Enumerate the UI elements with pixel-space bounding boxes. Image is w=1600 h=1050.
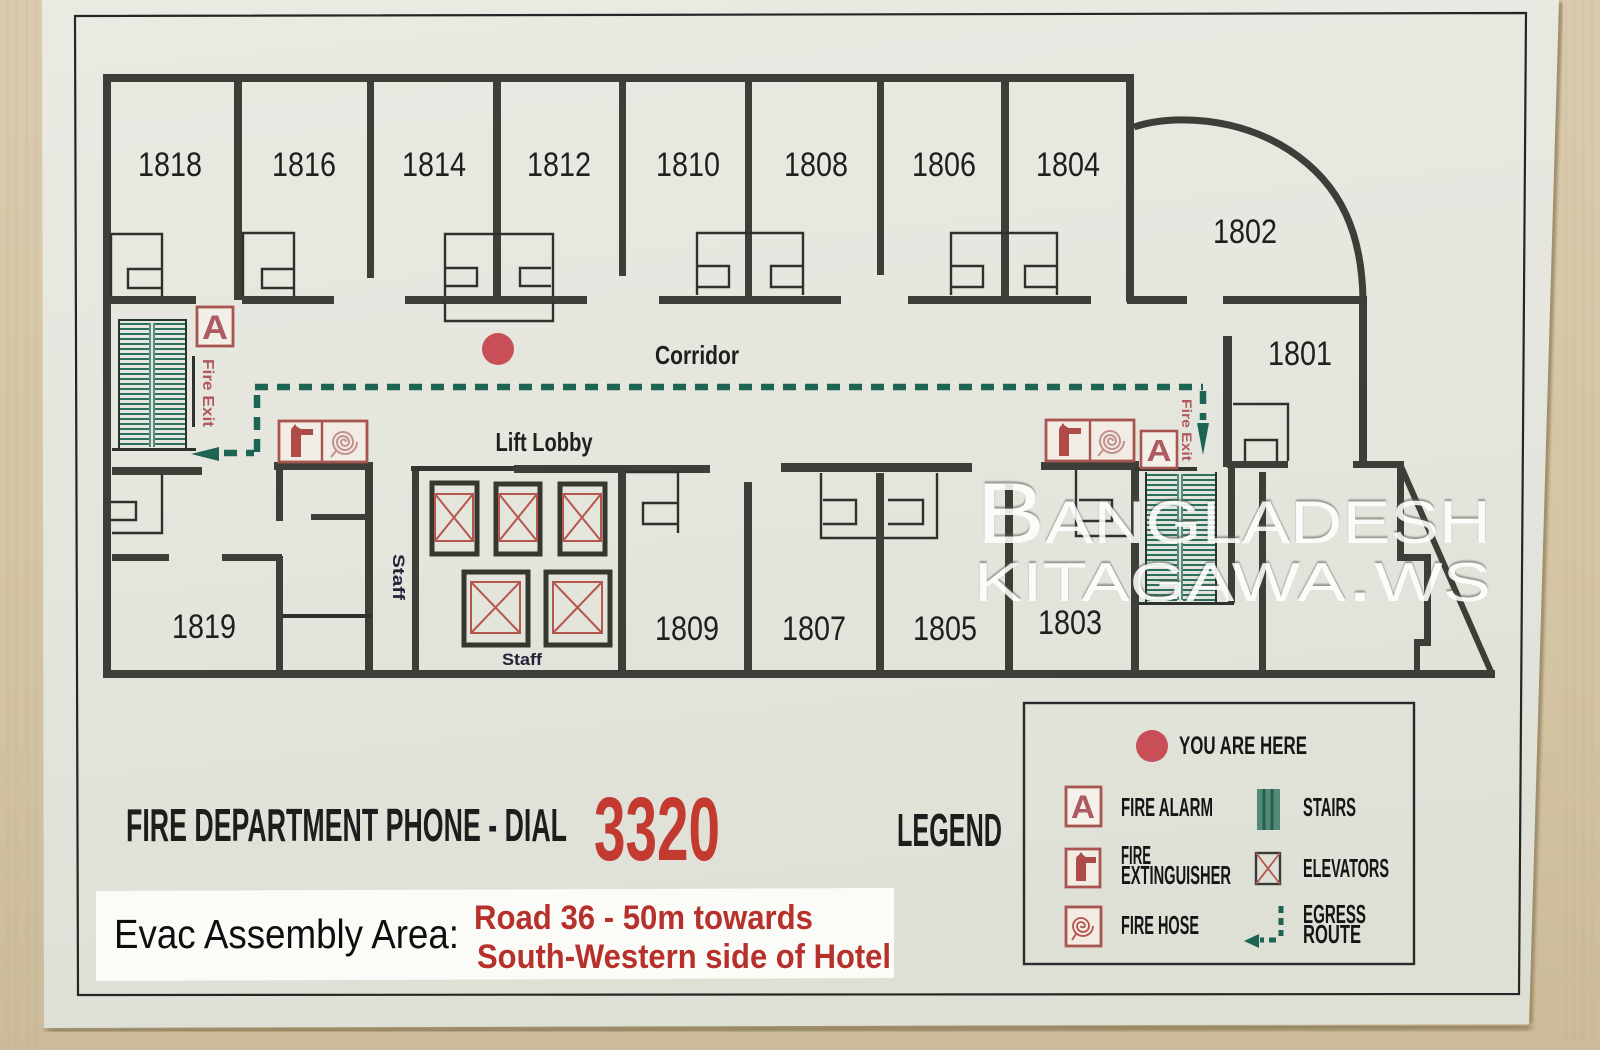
svg-text:1814: 1814 [402,146,466,184]
svg-text:1819: 1819 [172,608,236,646]
svg-text:1808: 1808 [784,146,848,184]
svg-text:1805: 1805 [913,610,977,648]
svg-text:Fire Exit: Fire Exit [1179,399,1195,461]
svg-text:Fire Exit: Fire Exit [199,359,216,428]
svg-text:South-Western side of Hotel: South-Western side of Hotel [477,938,891,976]
svg-text:Staff: Staff [389,554,408,600]
svg-text:Corridor: Corridor [655,340,739,370]
svg-text:1816: 1816 [272,146,336,184]
svg-text:1818: 1818 [138,146,202,184]
svg-text:1801: 1801 [1268,335,1332,373]
svg-text:Evac Assembly Area:: Evac Assembly Area: [114,911,459,957]
svg-text:1802: 1802 [1213,213,1277,251]
svg-text:1812: 1812 [527,146,591,184]
svg-text:FIRE DEPARTMENT PHONE - DIAL: FIRE DEPARTMENT PHONE - DIAL [126,799,567,851]
svg-text:Staff: Staff [502,650,542,669]
svg-text:LEGEND: LEGEND [897,804,1002,856]
svg-text:1809: 1809 [655,610,719,648]
svg-text:1806: 1806 [912,146,976,184]
svg-text:YOU ARE HERE: YOU ARE HERE [1179,732,1307,760]
svg-text:STAIRS: STAIRS [1303,792,1356,822]
svg-text:1804: 1804 [1036,146,1100,184]
svg-text:ROUTE: ROUTE [1303,919,1361,949]
svg-text:Road 36 - 50m towards: Road 36 - 50m towards [474,899,813,937]
svg-text:EXTINGUISHER: EXTINGUISHER [1121,860,1231,890]
svg-text:3320: 3320 [594,780,720,880]
svg-text:1807: 1807 [782,610,846,648]
svg-text:Lift Lobby: Lift Lobby [496,427,593,457]
svg-text:A: A [1071,789,1095,825]
svg-text:FIRE HOSE: FIRE HOSE [1121,910,1199,940]
svg-text:kitagawa.ws: kitagawa.ws [974,530,1491,618]
svg-text:ELEVATORS: ELEVATORS [1303,853,1389,883]
svg-text:A: A [202,309,228,347]
svg-text:FIRE ALARM: FIRE ALARM [1121,792,1213,822]
svg-text:1810: 1810 [656,146,720,184]
svg-text:A: A [1147,433,1172,468]
